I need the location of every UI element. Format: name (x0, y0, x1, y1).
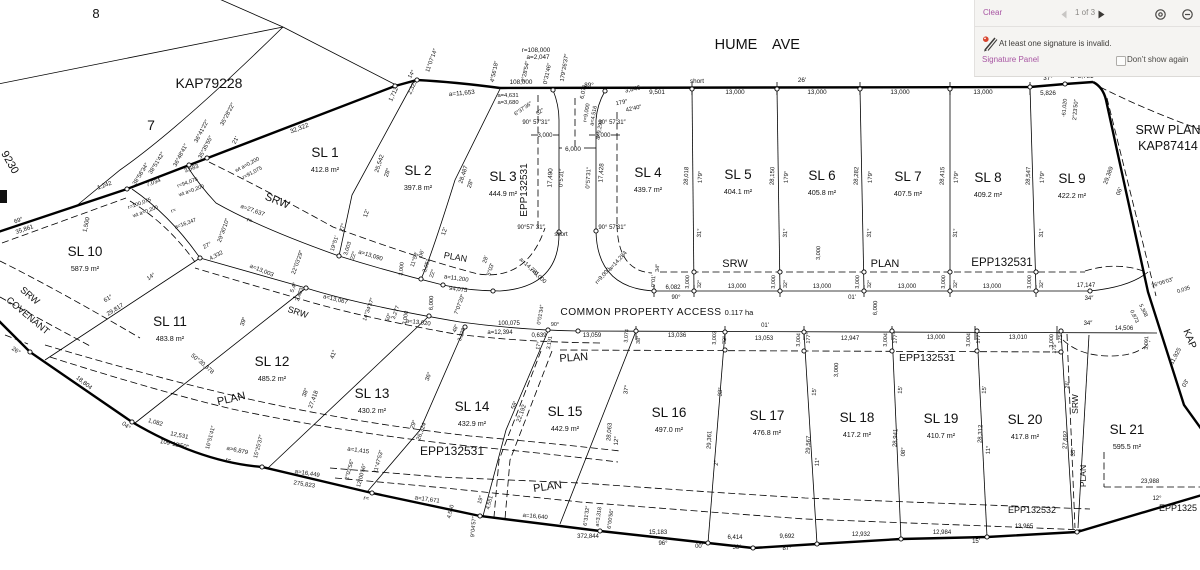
svg-text:a=3,680: a=3,680 (497, 100, 518, 106)
svg-text:SL 21: SL 21 (1110, 422, 1145, 437)
svg-text:SL 20: SL 20 (1008, 412, 1043, 427)
svg-text:SL 11: SL 11 (153, 314, 187, 329)
svg-text:a=4,631: a=4,631 (497, 93, 518, 99)
svg-text:3,000: 3,000 (941, 275, 947, 289)
svg-text:SL 12: SL 12 (255, 354, 290, 369)
svg-text:38°: 38° (636, 336, 643, 345)
svg-text:3,000: 3,000 (855, 275, 861, 289)
svg-text:485.2 m²: 485.2 m² (258, 374, 287, 383)
svg-text:90°: 90° (551, 322, 559, 328)
svg-text:01': 01' (848, 295, 856, 301)
svg-text:SL 13: SL 13 (355, 386, 390, 401)
svg-text:179°: 179° (698, 170, 704, 183)
svg-text:31°: 31° (1039, 228, 1045, 238)
svg-text:6,000: 6,000 (429, 296, 436, 311)
svg-text:SL 7: SL 7 (894, 169, 921, 184)
svg-text:28,150: 28,150 (770, 166, 777, 185)
svg-text:26': 26' (1065, 381, 1071, 389)
svg-text:12,984: 12,984 (933, 530, 952, 536)
svg-text:177°: 177° (893, 332, 899, 343)
svg-text:12°: 12° (614, 436, 621, 446)
svg-text:422.2 m²: 422.2 m² (1058, 191, 1087, 200)
svg-text:90° 57′31″: 90° 57′31″ (598, 120, 626, 126)
svg-text:28,018: 28,018 (684, 166, 691, 185)
svg-text:9,692: 9,692 (779, 534, 795, 540)
svg-text:177°: 177° (976, 332, 982, 343)
svg-text:SRW: SRW (722, 258, 748, 270)
svg-text:90° 57′31″: 90° 57′31″ (598, 225, 626, 231)
svg-text:28,415: 28,415 (940, 166, 947, 185)
svg-text:11°: 11° (986, 445, 992, 455)
svg-text:34″: 34″ (1084, 321, 1094, 327)
svg-text:90°57′ 31″: 90°57′ 31″ (517, 225, 545, 231)
svg-text:32°: 32° (1039, 280, 1045, 288)
svg-text:6,414: 6,414 (727, 535, 743, 541)
svg-text:587.9 m²: 587.9 m² (71, 264, 100, 273)
svg-text:COMMON PROPERTY ACCESS: COMMON PROPERTY ACCESS (560, 307, 721, 318)
svg-text:100,075: 100,075 (498, 321, 520, 327)
svg-text:SL 19: SL 19 (924, 411, 959, 426)
svg-text:32°: 32° (697, 280, 703, 288)
svg-text:SL 8: SL 8 (974, 170, 1001, 185)
svg-text:405.8 m²: 405.8 m² (808, 188, 837, 197)
svg-text:15': 15' (972, 539, 980, 545)
svg-text:29,567: 29,567 (806, 435, 813, 454)
svg-text:28,941: 28,941 (893, 428, 900, 447)
svg-text:23,988: 23,988 (1141, 479, 1160, 485)
svg-text:3,000: 3,000 (595, 133, 611, 139)
svg-text:87°: 87° (782, 546, 792, 552)
svg-text:15': 15' (898, 386, 904, 394)
svg-text:8: 8 (92, 6, 99, 21)
svg-text:r=108,000: r=108,000 (522, 47, 551, 54)
svg-text:PLAN: PLAN (1078, 465, 1088, 487)
svg-text:SL 9: SL 9 (1058, 171, 1085, 186)
svg-text:SL 17: SL 17 (750, 408, 785, 423)
svg-text:13,000: 13,000 (927, 335, 946, 341)
svg-text:SL 16: SL 16 (652, 405, 687, 420)
svg-text:417.8 m²: 417.8 m² (1011, 432, 1040, 441)
svg-text:2°: 2° (714, 459, 720, 466)
svg-text:175°: 175° (1052, 342, 1059, 353)
svg-text:33°: 33° (718, 387, 724, 397)
svg-text:EPP132531: EPP132531 (519, 163, 530, 217)
svg-text:0°01': 0°01' (651, 275, 657, 287)
svg-text:7: 7 (147, 117, 155, 133)
svg-text:3,000: 3,000 (685, 275, 691, 289)
svg-text:417.2 m²: 417.2 m² (843, 430, 872, 439)
svg-text:12°: 12° (1152, 496, 1162, 502)
svg-text:13,010: 13,010 (1009, 335, 1028, 341)
svg-text:short: short (554, 232, 568, 238)
svg-text:SL 4: SL 4 (634, 165, 662, 180)
svg-text:28,282: 28,282 (854, 166, 861, 185)
svg-text:56°: 56° (732, 545, 742, 551)
svg-text:KAP87414: KAP87414 (1138, 139, 1198, 153)
svg-text:KAP79228: KAP79228 (176, 75, 243, 91)
svg-text:13,036: 13,036 (668, 333, 687, 339)
svg-text:PLAN: PLAN (871, 258, 900, 270)
svg-text:a=2,047: a=2,047 (527, 54, 550, 61)
svg-text:15,183: 15,183 (649, 530, 668, 536)
svg-text:17,428: 17,428 (598, 163, 606, 183)
svg-text:EPP132531: EPP132531 (420, 444, 484, 458)
svg-text:497.0 m²: 497.0 m² (655, 425, 684, 434)
svg-text:SL 10: SL 10 (68, 244, 103, 259)
svg-text:34″: 34″ (1085, 296, 1095, 302)
svg-text:11°: 11° (815, 457, 821, 467)
svg-text:32°: 32° (867, 280, 873, 288)
svg-text:EPP132532: EPP132532 (1008, 505, 1056, 515)
svg-text:PLAN: PLAN (559, 351, 589, 365)
svg-text:34″: 34″ (655, 264, 661, 272)
svg-text:3,000: 3,000 (771, 275, 777, 289)
svg-text:3,091: 3,091 (1144, 336, 1150, 350)
svg-text:EPP132531: EPP132531 (899, 352, 955, 364)
svg-text:3,000: 3,000 (1027, 275, 1033, 289)
svg-text:17,147: 17,147 (1077, 283, 1096, 289)
svg-text:397.8 m²: 397.8 m² (404, 183, 433, 192)
svg-text:483.8 m²: 483.8 m² (156, 334, 185, 343)
svg-text:13,000: 13,000 (728, 284, 747, 290)
svg-text:13,059: 13,059 (583, 333, 602, 339)
svg-text:0°57′31″: 0°57′31″ (585, 167, 592, 189)
svg-text:3,000: 3,000 (834, 363, 841, 378)
svg-text:08°: 08° (901, 447, 907, 457)
svg-text:28,312: 28,312 (978, 424, 985, 443)
svg-text:3,003: 3,003 (712, 331, 718, 345)
svg-text:90°: 90° (671, 295, 681, 301)
svg-text:31°: 31° (953, 228, 959, 238)
svg-text:a=12,394: a=12,394 (487, 330, 513, 336)
svg-text:32°: 32° (953, 280, 959, 288)
svg-text:96°: 96° (658, 541, 668, 547)
svg-text:595.5 m²: 595.5 m² (1113, 442, 1142, 451)
svg-text:0,639: 0,639 (531, 333, 547, 339)
svg-text:430.2 m²: 430.2 m² (358, 406, 387, 415)
svg-text:439.7 m²: 439.7 m² (634, 185, 663, 194)
svg-text:179°: 179° (868, 170, 874, 183)
svg-text:3,000: 3,000 (816, 246, 822, 260)
svg-text:179°: 179° (1040, 170, 1046, 183)
svg-text:13,000: 13,000 (973, 89, 993, 96)
svg-text:177°: 177° (806, 332, 812, 343)
svg-text:13,000: 13,000 (813, 284, 832, 290)
svg-text:90° 57′31″: 90° 57′31″ (522, 120, 550, 126)
svg-text:412.8 m²: 412.8 m² (311, 165, 340, 174)
svg-text:12,932: 12,932 (852, 532, 871, 538)
svg-text:13,965: 13,965 (1015, 524, 1034, 530)
svg-text:EPP132531: EPP132531 (971, 257, 1032, 269)
svg-text:0.117 ha: 0.117 ha (725, 308, 754, 317)
svg-text:12,947: 12,947 (841, 336, 860, 342)
svg-text:01': 01' (761, 323, 769, 329)
svg-text:372,844: 372,844 (577, 534, 599, 540)
svg-text:3,000: 3,000 (398, 262, 405, 276)
svg-text:13,000: 13,000 (983, 284, 1002, 290)
svg-text:SL 15: SL 15 (548, 404, 583, 419)
svg-text:175°: 175° (1058, 332, 1064, 343)
svg-text:00': 00' (695, 544, 703, 550)
svg-text:35°: 35° (1071, 447, 1077, 457)
svg-text:31°: 31° (783, 228, 789, 238)
svg-text:410.7 m²: 410.7 m² (927, 431, 956, 440)
svg-text:444.9 m²: 444.9 m² (489, 189, 518, 198)
svg-text:6,000: 6,000 (565, 146, 581, 153)
svg-text:9,501: 9,501 (649, 89, 665, 96)
svg-text:6,082: 6,082 (665, 285, 681, 291)
svg-text:14,506: 14,506 (1115, 326, 1134, 332)
svg-text:432.9 m²: 432.9 m² (458, 419, 487, 428)
svg-text:32°: 32° (783, 280, 789, 288)
svg-text:17,490: 17,490 (547, 168, 555, 188)
svg-text:6,000: 6,000 (873, 301, 880, 316)
svg-text:29,361: 29,361 (707, 430, 714, 449)
svg-text:3,004: 3,004 (796, 333, 802, 347)
svg-text:15': 15' (982, 386, 988, 394)
svg-text:0°5′31″: 0°5′31″ (559, 169, 566, 188)
svg-text:short: short (690, 78, 704, 85)
svg-text:31°: 31° (867, 228, 873, 238)
svg-text:SRW: SRW (1070, 394, 1080, 414)
svg-text:3,074: 3,074 (623, 329, 630, 343)
svg-text:3,000: 3,000 (537, 133, 553, 139)
svg-text:SL 6: SL 6 (808, 168, 835, 183)
svg-text:32°: 32° (722, 336, 728, 344)
svg-text:SL 5: SL 5 (724, 167, 751, 182)
svg-text:3,004: 3,004 (966, 333, 972, 347)
svg-text:442.9 m²: 442.9 m² (551, 424, 580, 433)
svg-text:31°: 31° (697, 228, 703, 238)
svg-text:15': 15' (812, 388, 818, 396)
svg-text:HUME: HUME (715, 37, 758, 53)
svg-text:5,826: 5,826 (1040, 90, 1056, 97)
svg-text:SL 1: SL 1 (311, 145, 338, 160)
svg-text:SRW PLAN: SRW PLAN (1135, 123, 1200, 137)
svg-text:13,000: 13,000 (725, 89, 745, 96)
svg-text:28,547: 28,547 (1026, 166, 1033, 185)
svg-text:13,000: 13,000 (807, 89, 827, 96)
svg-text:409.2 m²: 409.2 m² (974, 190, 1003, 199)
svg-text:404.1 m²: 404.1 m² (724, 187, 753, 196)
svg-text:AVE: AVE (772, 37, 800, 53)
svg-text:26': 26' (798, 77, 806, 84)
svg-text:179°: 179° (784, 170, 790, 183)
svg-text:SL 3: SL 3 (489, 169, 516, 184)
svg-text:179°: 179° (954, 170, 960, 183)
svg-text:SL 18: SL 18 (840, 410, 875, 425)
svg-text:EPP1325: EPP1325 (1159, 503, 1197, 513)
svg-text:27,692: 27,692 (1063, 430, 1070, 449)
svg-text:13,053: 13,053 (755, 336, 774, 342)
svg-text:13,000: 13,000 (898, 284, 917, 290)
svg-text:SL 2: SL 2 (404, 163, 431, 178)
svg-text:476.8 m²: 476.8 m² (753, 428, 782, 437)
svg-text:407.5 m²: 407.5 m² (894, 189, 923, 198)
svg-text:13,000: 13,000 (890, 89, 910, 96)
svg-text:3,004: 3,004 (883, 333, 889, 347)
svg-text:SL 14: SL 14 (455, 399, 490, 414)
